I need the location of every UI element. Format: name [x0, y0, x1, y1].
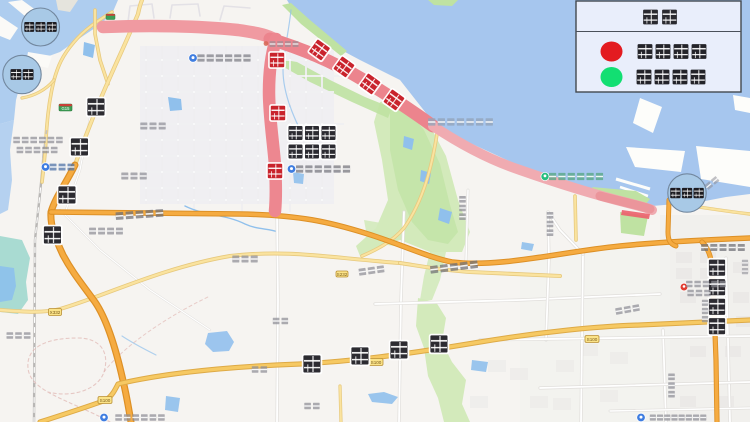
svg-text:S100: S100: [371, 360, 382, 365]
svg-text:X332: X332: [50, 310, 61, 315]
svg-text:G15: G15: [62, 106, 71, 111]
svg-text:S232: S232: [337, 272, 348, 277]
svg-text:S100: S100: [587, 337, 598, 342]
svg-text:S100: S100: [100, 398, 111, 403]
